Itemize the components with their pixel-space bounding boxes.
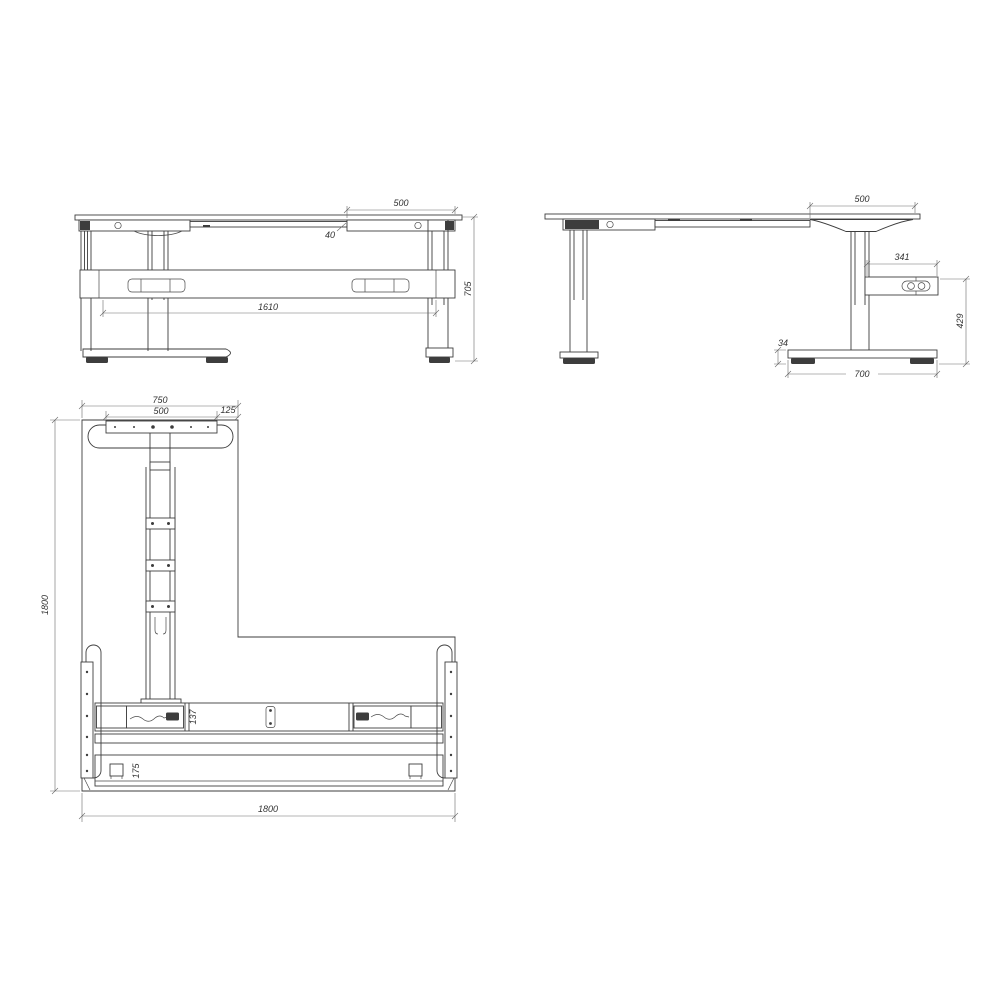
side-dim-boxfloor-label: 429 xyxy=(955,313,965,328)
front-right-foot-pad xyxy=(429,357,450,363)
technical-drawing-canvas: 500 40 1610 705 500 xyxy=(0,0,1000,1000)
plan-dim-width-label: 1800 xyxy=(258,804,278,814)
side-control-box xyxy=(865,277,938,295)
plan-left-foot-plate xyxy=(81,662,93,778)
front-left-foot-pad-1 xyxy=(86,357,108,363)
plan-right-foot-plate xyxy=(445,662,457,778)
side-rail-joint-2 xyxy=(740,219,752,222)
plan-dim-depth-label: 1800 xyxy=(40,595,50,615)
front-rail-joint xyxy=(203,225,210,227)
side-right-foot-pad-1 xyxy=(791,358,815,364)
side-rail xyxy=(655,221,810,228)
front-tabletop xyxy=(75,215,462,220)
front-right-foot xyxy=(426,348,453,357)
plan-plug-right xyxy=(356,713,369,721)
side-dim-overhang-label: 500 xyxy=(854,194,869,204)
front-dim-legspan-label: 1610 xyxy=(258,302,278,312)
side-right-foot xyxy=(788,350,937,358)
side-left-foot-pad xyxy=(563,358,595,364)
side-dim-controlbox-label: 341 xyxy=(894,252,909,262)
front-left-bracket-block xyxy=(80,221,90,230)
side-rail-joint-1 xyxy=(668,219,680,222)
plan-dim-edgegap-label: 125 xyxy=(220,405,236,415)
plan-column-rung-1 xyxy=(146,518,175,529)
side-tabletop xyxy=(545,214,920,219)
plan-dim-panelwidth-label: 175 xyxy=(131,763,141,779)
front-cross-beam xyxy=(80,270,455,298)
side-left-bracket-block xyxy=(565,220,599,229)
side-dim-footlength-label: 700 xyxy=(854,369,869,379)
plan-plug-left xyxy=(166,713,179,721)
front-right-bracket xyxy=(347,220,455,231)
plan-column-top-rung xyxy=(150,462,170,470)
plan-column-rung-2 xyxy=(146,560,175,571)
front-right-bracket-block xyxy=(445,221,454,230)
front-middle-rail xyxy=(190,222,347,228)
plan-dim-topwidth-label: 750 xyxy=(152,395,167,405)
plan-dim-beamwidth-label: 137 xyxy=(188,709,198,725)
plan-column-rung-3 xyxy=(146,601,175,612)
front-dim-height-label: 705 xyxy=(463,281,473,297)
side-left-foot xyxy=(560,352,598,358)
plan-lower-rail xyxy=(95,734,443,743)
front-dim-topoffset-label: 40 xyxy=(325,230,335,240)
front-dim-overhang-label: 500 xyxy=(393,198,408,208)
plan-dim-bracket-label: 500 xyxy=(153,406,168,416)
front-left-bracket xyxy=(79,220,190,231)
plan-top-bracket xyxy=(106,421,217,433)
desk-technical-drawing: 500 40 1610 705 500 xyxy=(0,0,1000,1000)
side-right-foot-pad-2 xyxy=(910,358,934,364)
side-dim-footheight-label: 34 xyxy=(778,338,788,348)
front-left-foot-pad-2 xyxy=(206,357,228,363)
